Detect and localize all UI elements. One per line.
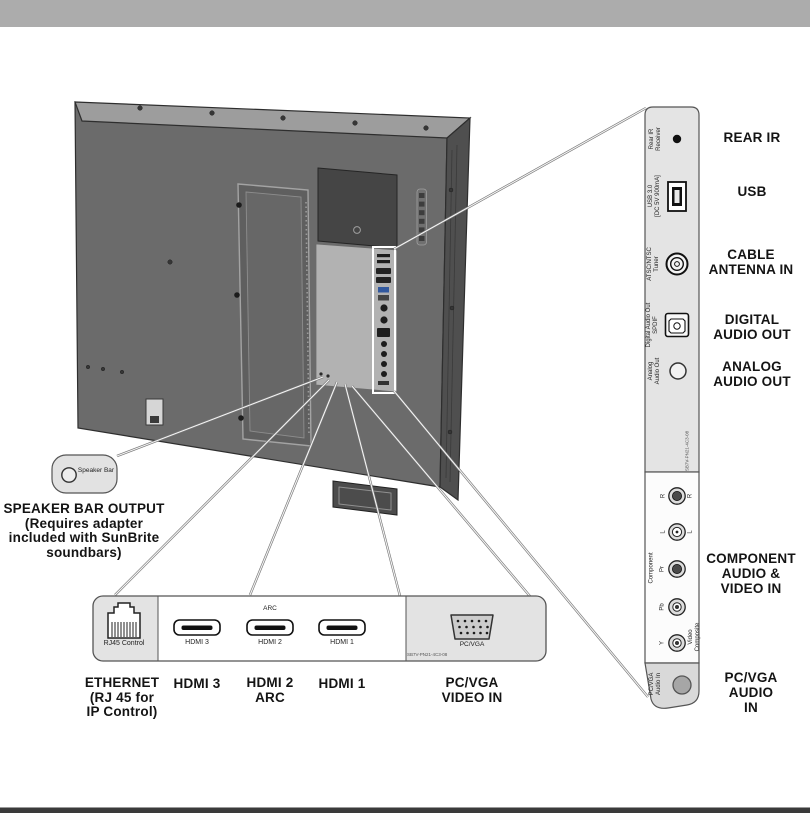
side-panel-part-number: SB7V-PN21-4C3-08 — [685, 431, 690, 471]
analog-audio-jack — [670, 363, 686, 379]
jack-label-r-right: R — [688, 494, 695, 498]
caption-pc-vga-audio: PC/VGA AUDIO IN — [725, 670, 778, 715]
analog-panel-label: Analog Audio Out — [648, 358, 662, 385]
hdmi1-port-icon — [319, 620, 365, 635]
caption-hdmi3: HDMI 3 — [174, 676, 221, 691]
rear-ir-receiver-dot — [673, 135, 681, 143]
tv-back-drawing — [75, 102, 470, 515]
component-group-label: Component — [649, 552, 656, 583]
tuner-panel-label: ATSC/NTSC Tuner — [647, 247, 661, 281]
composite-video-label: Video Composite — [688, 623, 702, 652]
jack-label-y: Y — [660, 641, 667, 645]
rj45-panel-label: RJ45 Control — [104, 638, 145, 649]
spdif-panel-label: Digital Audio Out SPDIF — [646, 303, 660, 348]
usb-port-icon — [668, 182, 686, 211]
rear-ir-panel-label: Rear IR Receiver — [649, 127, 663, 151]
caption-digital-audio: DIGITAL AUDIO OUT — [713, 312, 791, 342]
caption-cable-antenna: CABLE ANTENNA IN — [709, 247, 794, 277]
speaker-bar-box-label: Speaker Bar — [78, 467, 114, 475]
bottom-panel-detail — [93, 596, 546, 661]
side-panel-upper-section — [645, 107, 699, 472]
upper-recess — [318, 168, 397, 248]
jack-label-l-left: L — [661, 530, 668, 533]
power-cord-box — [146, 399, 163, 425]
caption-rear-ir: REAR IR — [724, 130, 781, 145]
tv-connections-diagram: Speaker Bar SPEAKER BAR OUTPUT (Requires… — [0, 0, 810, 813]
usb-panel-label: USB 3.0 [DC 5V 900mA] — [648, 175, 662, 217]
jack-label-pr: Pr — [660, 566, 667, 572]
arc-panel-label: ARC — [263, 605, 277, 613]
hdmi2-port-icon — [247, 620, 293, 635]
bottom-handle — [333, 481, 397, 515]
jack-label-l-right: L — [688, 530, 695, 533]
vga-panel-label: PC/VGA — [460, 641, 485, 649]
caption-hdmi1: HDMI 1 — [319, 676, 366, 691]
hdmi3-panel-label: HDMI 3 — [185, 637, 209, 648]
jack-label-pb: Pb — [660, 603, 667, 610]
caption-ethernet: ETHERNET (RJ 45 for IP Control) — [85, 676, 159, 720]
hdmi3-port-icon — [174, 620, 220, 635]
bottom-panel-part-number: SB7V-PN21-4C3-08 — [407, 652, 447, 657]
coax-antenna-icon — [667, 254, 688, 275]
speaker-bar-caption: SPEAKER BAR OUTPUT (Requires adapter inc… — [3, 502, 164, 560]
usb-port-blue — [378, 287, 389, 293]
caption-hdmi2-arc: HDMI 2 ARC — [247, 676, 294, 705]
port-recess — [316, 244, 397, 393]
caption-analog-audio: ANALOG AUDIO OUT — [713, 359, 791, 389]
jack-label-r-left: R — [661, 494, 668, 498]
hdmi1-panel-label: HDMI 1 — [330, 637, 354, 648]
caption-usb: USB — [737, 184, 766, 199]
spdif-optical-icon — [666, 314, 689, 337]
pc-vga-audio-panel-label: PC/VGA Audio In — [649, 673, 663, 696]
hdmi2-panel-label: HDMI 2 — [258, 637, 282, 648]
speaker-bar-jack — [62, 468, 76, 482]
vga-port-icon — [451, 615, 493, 639]
caption-vga-video: PC/VGA VIDEO IN — [442, 676, 503, 705]
caption-component: COMPONENT AUDIO & VIDEO IN — [706, 551, 796, 596]
pc-vga-audio-jack — [673, 676, 691, 694]
